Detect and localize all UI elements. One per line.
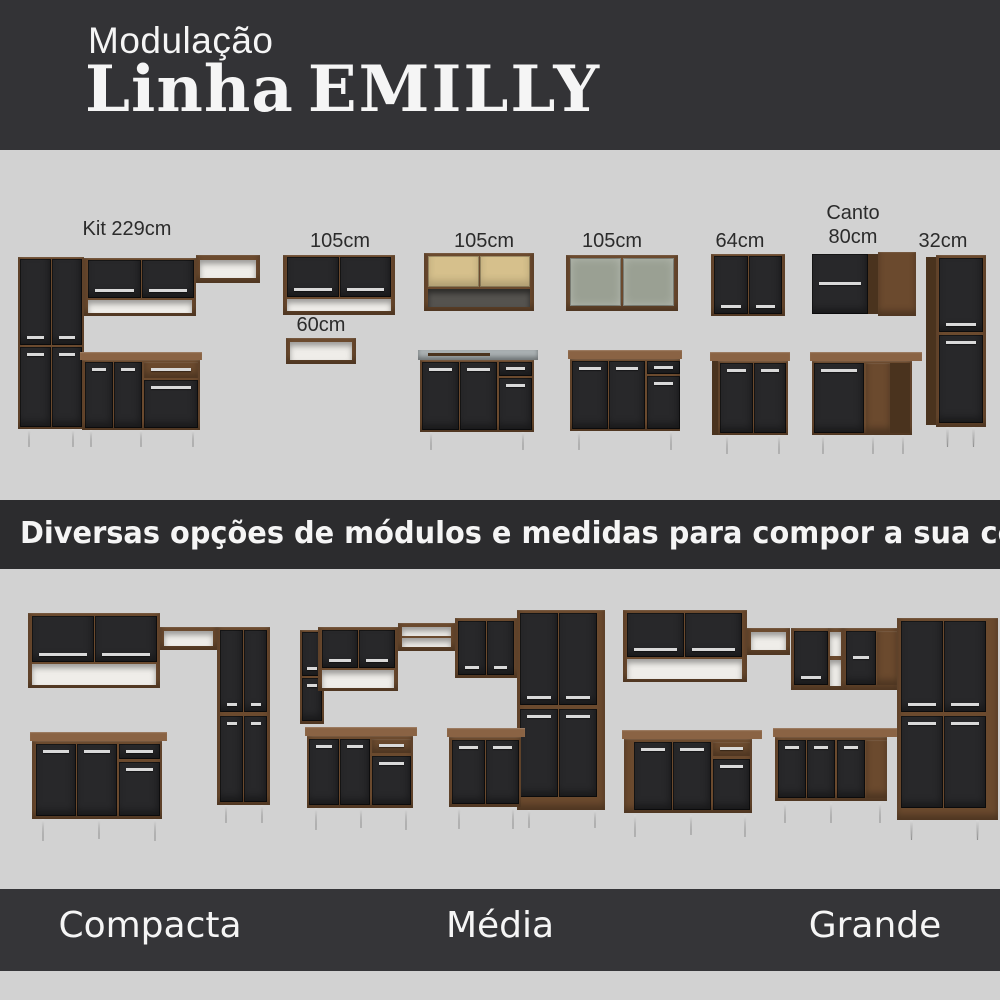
door-handle (680, 748, 704, 751)
furniture-part-wl (773, 728, 897, 737)
furniture-part-dr (807, 740, 835, 798)
furniture-part-lg (688, 815, 694, 835)
label-kitchen-grande: Grande (809, 905, 942, 946)
door-handle (908, 703, 936, 706)
door-handle (102, 653, 150, 656)
furniture-part-ws (926, 257, 936, 425)
door-handle (59, 353, 75, 356)
furniture-part-ws (890, 363, 910, 433)
illustration-kitchen-media (300, 600, 610, 840)
door-handle (307, 684, 317, 687)
illustration-wall-corner-80 (812, 252, 916, 318)
door-handle (429, 368, 452, 371)
furniture-part-dr (901, 621, 943, 712)
door-handle (727, 369, 746, 372)
label-105cm-c: 105cm (582, 230, 642, 253)
door-handle (347, 288, 384, 291)
furniture-part-dr (559, 709, 597, 797)
furniture-part-lg (828, 803, 834, 823)
furniture-part-wl (810, 352, 922, 361)
furniture-part-wl (710, 352, 790, 361)
door-handle (819, 282, 861, 285)
furniture-part-wl (622, 730, 762, 739)
door-handle (844, 746, 858, 749)
furniture-part-ws (428, 353, 490, 356)
furniture-part-ni (830, 660, 841, 686)
furniture-part-dr (713, 759, 750, 810)
door-handle (493, 746, 512, 749)
furniture-part-dr (520, 709, 558, 797)
door-handle (785, 746, 799, 749)
furniture-part-dr (487, 621, 514, 675)
door-handle (527, 715, 551, 718)
furniture-part-lg (944, 427, 951, 447)
door-handle (251, 722, 261, 725)
door-handle (27, 336, 44, 339)
furniture-part-dr (458, 621, 486, 675)
furniture-part-dr (95, 616, 157, 662)
furniture-part-lg (900, 435, 906, 454)
furniture-part-lg (974, 820, 981, 840)
furniture-part-dr (422, 362, 459, 430)
door-handle (946, 341, 976, 344)
furniture-part-dr (499, 362, 532, 376)
door-handle (654, 366, 673, 369)
door-handle (951, 703, 979, 706)
door-handle (821, 369, 857, 372)
label-canto-line2: 80cm (829, 226, 878, 249)
furniture-part-dr (794, 631, 828, 685)
door-handle (366, 659, 388, 662)
poster: Modulação LinhaEMILLY Kit 229cm 105cm 60… (0, 0, 1000, 1000)
furniture-part-dr (32, 616, 94, 662)
furniture-part-wl (447, 728, 525, 737)
illustration-kitchen-grande (622, 600, 1000, 850)
door-handle (59, 336, 75, 339)
furniture-part-wd (866, 363, 890, 433)
furniture-part-lg (70, 429, 76, 447)
furniture-part-dr (309, 739, 339, 805)
furniture-part-ws (868, 254, 878, 314)
furniture-part-wd (866, 740, 887, 798)
furniture-part-lg (96, 819, 102, 839)
furniture-part-lg (403, 808, 409, 830)
door-handle (761, 369, 779, 372)
label-32cm: 32cm (919, 230, 968, 253)
furniture-part-ni (164, 631, 213, 646)
furniture-part-dr (220, 716, 243, 802)
door-handle (579, 367, 601, 370)
furniture-part-wl (80, 352, 202, 360)
furniture-part-dr (142, 260, 194, 298)
door-handle (92, 368, 106, 371)
door-handle (379, 744, 404, 747)
furniture-part-wd (878, 252, 916, 316)
furniture-part-dr (85, 362, 113, 428)
furniture-part-wl (30, 732, 167, 741)
furniture-part-lg (40, 819, 46, 841)
illustration-wall-64 (711, 252, 787, 317)
furniture-part-dr (452, 740, 485, 804)
label-kit-229: Kit 229cm (83, 218, 172, 241)
furniture-part-dr (609, 361, 645, 429)
furniture-part-dr (647, 376, 680, 429)
furniture-part-dr (647, 361, 680, 374)
furniture-part-dr (486, 740, 519, 804)
door-handle (347, 745, 363, 748)
furniture-part-lg (190, 430, 196, 447)
furniture-part-dr (714, 256, 748, 314)
door-handle (151, 386, 191, 389)
title-line-prefix: Linha (85, 52, 294, 127)
furniture-part-dr (754, 363, 786, 433)
furniture-part-dr (814, 363, 864, 433)
furniture-part-lg (313, 808, 319, 830)
title-line-name: EMILLY (308, 52, 601, 127)
furniture-part-lg (88, 430, 94, 447)
door-handle (227, 703, 237, 706)
furniture-part-dr (144, 380, 198, 428)
furniture-part-lg (576, 431, 582, 450)
furniture-part-wd (144, 362, 198, 378)
furniture-part-wd (713, 742, 750, 756)
door-handle (307, 667, 317, 670)
door-handle (465, 666, 479, 669)
furniture-part-dr (673, 742, 711, 810)
door-handle (814, 746, 828, 749)
furniture-part-dr (36, 744, 76, 816)
furniture-part-wl (305, 727, 417, 736)
furniture-part-dr (77, 744, 117, 816)
door-handle (853, 656, 869, 659)
door-handle (720, 765, 743, 768)
furniture-part-dr (372, 756, 411, 805)
furniture-part-dr (901, 716, 943, 808)
illustration-wall-105-b (424, 251, 536, 311)
illustration-base-64 (710, 350, 790, 456)
furniture-part-lg (724, 435, 730, 454)
furniture-part-dr (939, 335, 983, 423)
illustration-kit-229 (18, 253, 262, 453)
illustration-base-corner-80 (810, 350, 922, 454)
door-handle (151, 368, 191, 371)
label-64cm: 64cm (716, 230, 765, 253)
furniture-part-lg (26, 429, 32, 447)
furniture-part-lg (908, 820, 915, 840)
illustration-wall-105-glass (566, 253, 678, 311)
door-handle (227, 722, 237, 725)
door-handle (506, 367, 525, 370)
furniture-part-lg (428, 432, 434, 450)
door-handle (616, 367, 638, 370)
door-handle (126, 768, 153, 771)
furniture-part-wl (568, 350, 682, 359)
furniture-part-lg (526, 810, 532, 828)
furniture-part-lg (877, 803, 883, 823)
furniture-part-ni (32, 664, 156, 685)
page-title: LinhaEMILLY (85, 52, 601, 127)
furniture-part-dr (749, 256, 782, 314)
door-handle (329, 659, 351, 662)
furniture-part-lg (742, 815, 748, 837)
door-handle (641, 748, 665, 751)
illustration-tall-32 (926, 253, 992, 453)
furniture-part-lg (520, 432, 526, 450)
furniture-part-ni (751, 632, 786, 650)
door-handle (294, 288, 332, 291)
door-handle (95, 289, 134, 292)
door-handle (908, 722, 936, 725)
door-handle (946, 323, 976, 326)
furniture-part-lg (152, 819, 158, 841)
furniture-part-dr (322, 630, 358, 668)
furniture-part-dr (119, 762, 160, 816)
furniture-part-dr (812, 254, 868, 314)
illustration-base-105 (568, 348, 682, 452)
furniture-part-dr (499, 378, 532, 430)
door-handle (494, 666, 507, 669)
furniture-part-ni (627, 659, 742, 679)
label-kitchen-compacta: Compacta (58, 905, 241, 946)
door-handle (756, 305, 775, 308)
furniture-part-lg (358, 808, 364, 828)
door-handle (506, 384, 525, 387)
furniture-part-ni (830, 632, 841, 656)
furniture-part-dr (460, 362, 497, 430)
door-handle (566, 696, 590, 699)
furniture-part-lg (668, 431, 674, 450)
furniture-part-dr (20, 347, 51, 427)
door-handle (121, 368, 135, 371)
furniture-part-dr (244, 630, 267, 712)
door-handle (379, 762, 404, 765)
furniture-part-ni (402, 638, 451, 647)
furniture-part-nd (428, 289, 530, 307)
furniture-part-dr (119, 744, 160, 759)
door-handle (467, 368, 490, 371)
door-handle (720, 747, 743, 750)
furniture-part-dr (20, 259, 51, 345)
bottom-strip (0, 971, 1000, 1000)
furniture-part-lg (510, 807, 516, 829)
door-handle (721, 305, 741, 308)
label-105cm-a: 105cm (310, 230, 370, 253)
door-handle (149, 289, 187, 292)
door-handle (459, 746, 478, 749)
furniture-part-lg (456, 807, 462, 829)
furniture-part-dr (559, 613, 597, 705)
door-handle (126, 750, 153, 753)
furniture-part-lg (782, 803, 788, 823)
furniture-part-lw (428, 256, 479, 287)
furniture-part-dr (359, 630, 395, 668)
furniture-part-lg (223, 805, 229, 823)
furniture-part-lg (138, 430, 144, 447)
furniture-part-lg (820, 435, 826, 454)
furniture-part-dr (52, 347, 82, 427)
door-handle (654, 382, 673, 385)
label-kitchen-media: Média (446, 905, 554, 946)
label-60cm: 60cm (297, 314, 346, 337)
furniture-part-wd (372, 739, 411, 753)
furniture-part-dr (572, 361, 608, 429)
banner-text: Diversas opções de módulos e medidas par… (20, 516, 980, 551)
furniture-part-dr (944, 621, 986, 712)
furniture-part-dr (244, 716, 267, 802)
furniture-part-ni (200, 260, 256, 278)
door-handle (634, 648, 677, 651)
door-handle (801, 676, 821, 679)
illustration-kitchen-compacta (20, 607, 275, 852)
furniture-part-ni (402, 627, 451, 636)
furniture-part-lg (632, 815, 638, 837)
furniture-part-ni (88, 300, 192, 313)
furniture-part-ni (322, 670, 394, 688)
illustration-shelf-60 (286, 336, 358, 366)
door-handle (43, 750, 69, 753)
furniture-part-dr (287, 257, 339, 297)
furniture-part-lg (592, 810, 598, 828)
furniture-part-dr (340, 257, 391, 297)
furniture-part-ni (290, 342, 352, 360)
furniture-part-lw (480, 256, 530, 287)
door-handle (566, 715, 590, 718)
furniture-part-dr (685, 613, 742, 657)
illustration-sink-base-105 (418, 348, 538, 452)
illustration-wall-105-a (283, 253, 397, 315)
furniture-part-dr (634, 742, 672, 810)
furniture-part-dr (939, 258, 983, 332)
furniture-part-lg (776, 435, 782, 454)
furniture-part-dr (720, 363, 753, 433)
furniture-part-dr (837, 740, 865, 798)
furniture-part-gl (570, 258, 621, 306)
door-handle (692, 648, 735, 651)
door-handle (527, 696, 551, 699)
door-handle (951, 722, 979, 725)
furniture-part-dr (220, 630, 243, 712)
furniture-part-lg (970, 427, 977, 447)
label-canto-line1: Canto (826, 202, 879, 225)
furniture-part-gl (623, 258, 674, 306)
label-105cm-b: 105cm (454, 230, 514, 253)
furniture-part-dr (340, 739, 370, 805)
furniture-part-ni (287, 299, 391, 311)
furniture-part-dr (944, 716, 986, 808)
door-handle (27, 353, 44, 356)
door-handle (84, 750, 110, 753)
furniture-part-lg (259, 805, 265, 823)
furniture-part-lg (870, 435, 876, 454)
door-handle (251, 703, 261, 706)
furniture-part-dr (88, 260, 141, 298)
furniture-part-dr (778, 740, 806, 798)
furniture-part-dr (627, 613, 684, 657)
furniture-part-dr (520, 613, 558, 705)
furniture-part-dr (52, 259, 82, 345)
furniture-part-wd (877, 631, 897, 685)
door-handle (39, 653, 87, 656)
furniture-part-dr (114, 362, 142, 428)
door-handle (316, 745, 332, 748)
furniture-part-dr (846, 631, 876, 685)
